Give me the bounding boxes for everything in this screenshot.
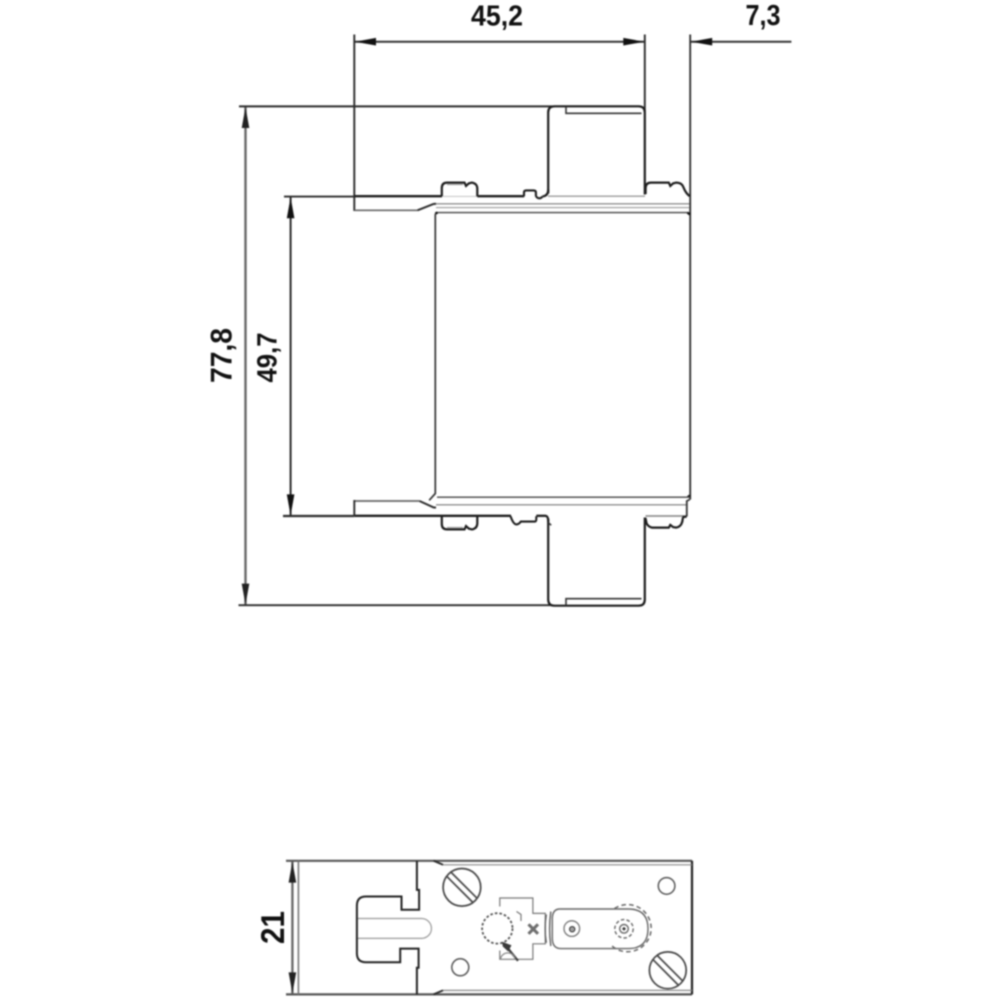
svg-text:49,7: 49,7 — [251, 333, 282, 383]
svg-text:77,8: 77,8 — [206, 328, 239, 383]
svg-text:7,3: 7,3 — [746, 0, 781, 32]
svg-text:45,2: 45,2 — [471, 0, 523, 32]
svg-text:21: 21 — [254, 911, 291, 944]
